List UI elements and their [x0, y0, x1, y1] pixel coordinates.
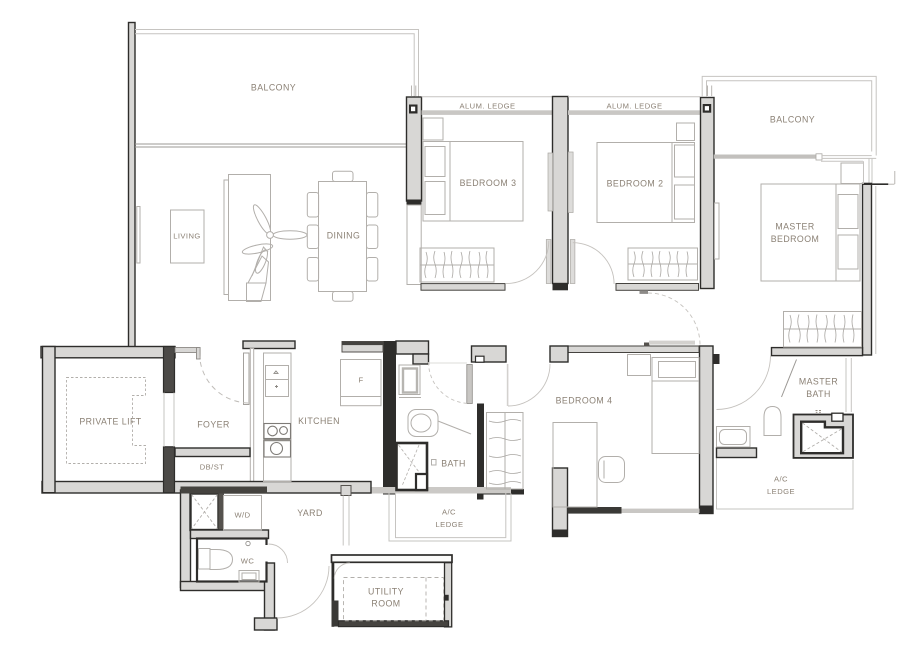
svg-text:BEDROOM 2: BEDROOM 2	[607, 179, 664, 189]
svg-text:ALUM. LEDGE: ALUM. LEDGE	[606, 102, 662, 111]
svg-text:BATH: BATH	[806, 389, 831, 399]
svg-text:MASTER: MASTER	[799, 377, 838, 387]
svg-text:BEDROOM: BEDROOM	[771, 234, 820, 244]
svg-text:PRIVATE LIFT: PRIVATE LIFT	[79, 417, 141, 427]
svg-text:BEDROOM 3: BEDROOM 3	[460, 178, 517, 188]
svg-text:A/C: A/C	[774, 475, 788, 484]
svg-text:FOYER: FOYER	[197, 420, 230, 430]
svg-text:LEDGE: LEDGE	[436, 520, 464, 529]
svg-text:UTILITY: UTILITY	[368, 587, 404, 597]
svg-text:BEDROOM 4: BEDROOM 4	[556, 396, 613, 406]
svg-text:DB/ST: DB/ST	[200, 463, 225, 472]
svg-text:DINING: DINING	[327, 231, 361, 241]
svg-text:KITCHEN: KITCHEN	[298, 416, 340, 426]
svg-text:W/D: W/D	[234, 511, 250, 520]
svg-text:LEDGE: LEDGE	[767, 487, 795, 496]
svg-text:BALCONY: BALCONY	[770, 115, 815, 125]
svg-text:BALCONY: BALCONY	[251, 83, 296, 93]
svg-text:WC: WC	[241, 557, 255, 566]
svg-text:LIVING: LIVING	[173, 232, 201, 241]
svg-text:MASTER: MASTER	[775, 222, 814, 232]
svg-text:BATH: BATH	[441, 459, 466, 469]
svg-text:ROOM: ROOM	[371, 599, 400, 609]
svg-text:F: F	[358, 376, 363, 385]
svg-text:ALUM. LEDGE: ALUM. LEDGE	[459, 102, 515, 111]
svg-text:A/C: A/C	[442, 508, 456, 517]
svg-text:YARD: YARD	[297, 508, 323, 518]
